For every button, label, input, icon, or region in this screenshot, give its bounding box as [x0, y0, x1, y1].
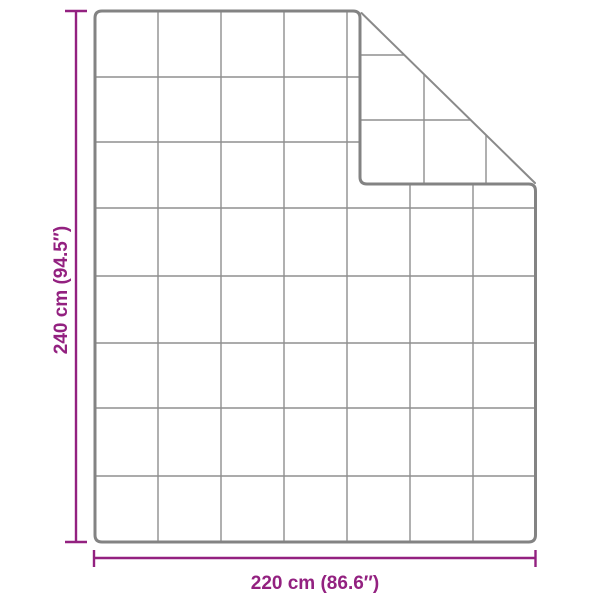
diagram-canvas: 240 cm (94.5″) 220 cm (86.6″): [0, 0, 600, 600]
width-dimension: 220 cm (86.6″): [94, 550, 536, 594]
height-dimension: 240 cm (94.5″): [51, 11, 87, 542]
fold-diagonal-edge: [362, 13, 536, 183]
width-dimension-label: 220 cm (86.6″): [251, 573, 379, 594]
quilting-grid-lines: [97, 13, 536, 542]
product-dimension-diagram: 240 cm (94.5″) 220 cm (86.6″): [0, 0, 600, 600]
width-dimension-line: [94, 550, 536, 567]
blanket: [95, 11, 536, 542]
height-dimension-label: 240 cm (94.5″): [51, 226, 72, 354]
